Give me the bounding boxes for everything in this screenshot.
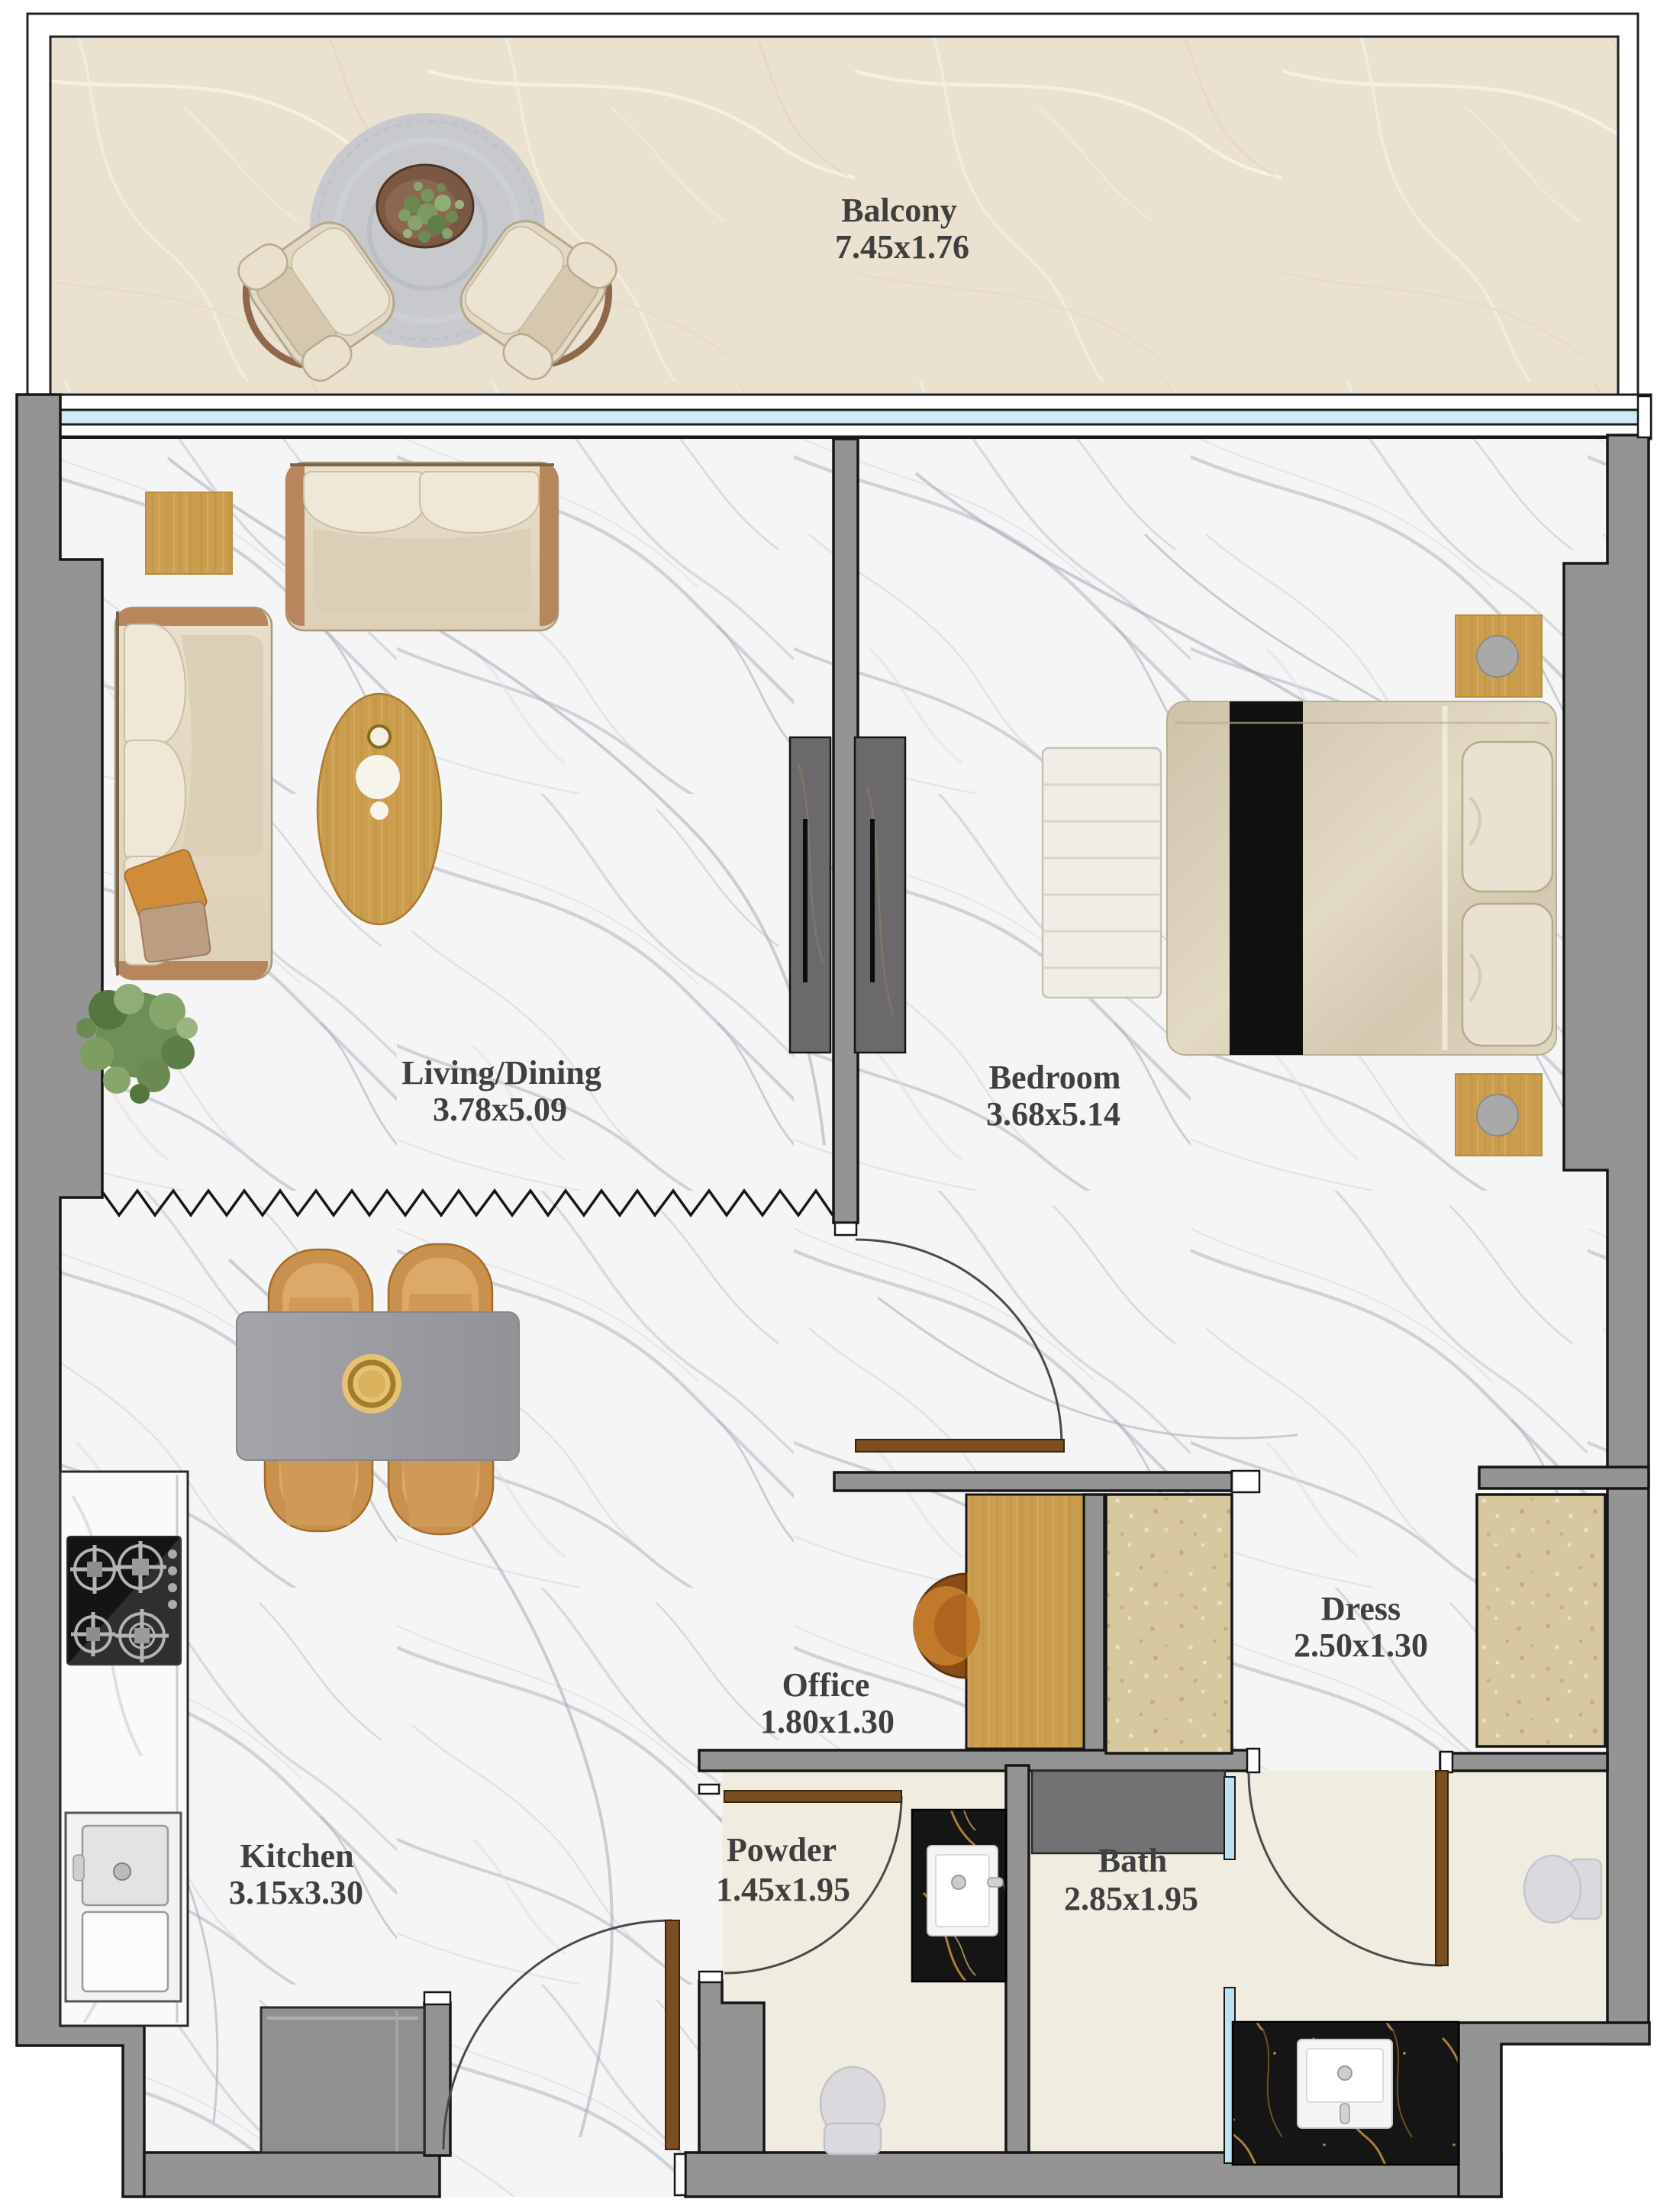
svg-text:3.15x3.30: 3.15x3.30	[229, 1874, 363, 1911]
svg-text:Bath: Bath	[1098, 1842, 1167, 1879]
svg-text:Kitchen: Kitchen	[240, 1837, 353, 1875]
svg-text:Dress: Dress	[1321, 1590, 1401, 1627]
svg-text:3.68x5.14: 3.68x5.14	[986, 1095, 1120, 1133]
svg-text:1.45x1.95: 1.45x1.95	[716, 1871, 850, 1908]
svg-text:Living/Dining: Living/Dining	[401, 1054, 601, 1091]
svg-text:Bedroom: Bedroom	[989, 1059, 1121, 1096]
svg-text:Powder: Powder	[727, 1831, 837, 1869]
svg-text:2.85x1.95: 2.85x1.95	[1064, 1880, 1198, 1917]
svg-text:2.50x1.30: 2.50x1.30	[1294, 1627, 1428, 1664]
svg-text:Balcony: Balcony	[841, 192, 957, 229]
svg-text:1.80x1.30: 1.80x1.30	[760, 1703, 895, 1740]
svg-text:Office: Office	[782, 1666, 870, 1704]
svg-text:7.45x1.76: 7.45x1.76	[835, 228, 969, 266]
svg-text:3.78x5.09: 3.78x5.09	[433, 1091, 567, 1128]
